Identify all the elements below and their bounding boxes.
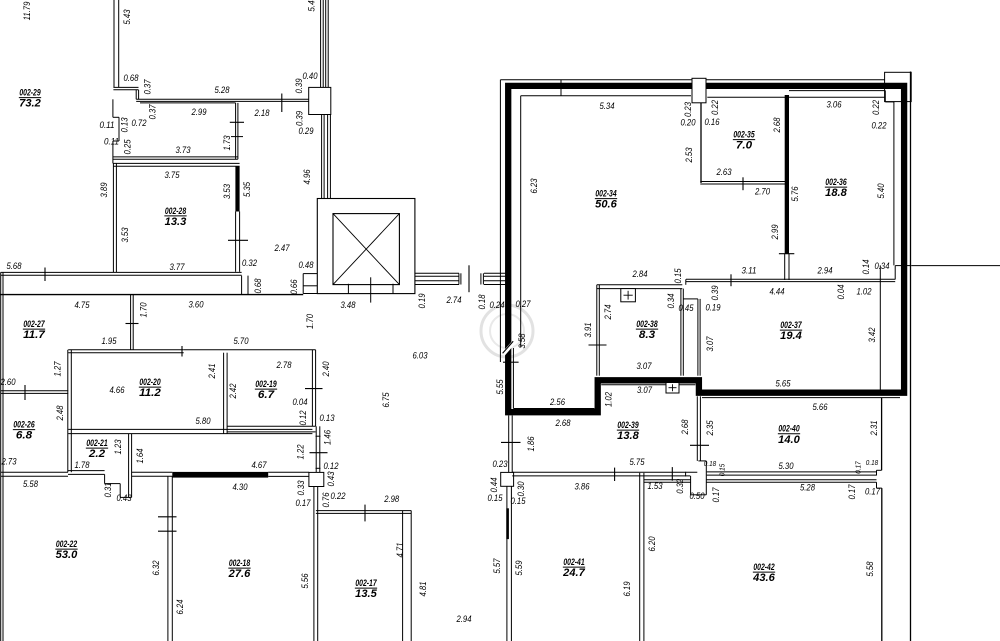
- svg-text:0.68: 0.68: [253, 278, 263, 293]
- svg-text:2.56: 2.56: [549, 397, 565, 407]
- svg-text:8.3: 8.3: [639, 329, 655, 341]
- svg-text:6.19: 6.19: [622, 581, 632, 596]
- svg-text:0.15: 0.15: [511, 496, 526, 506]
- svg-text:4.71: 4.71: [395, 542, 405, 557]
- svg-text:0.39: 0.39: [710, 285, 720, 300]
- svg-text:002-21: 002-21: [86, 438, 107, 448]
- svg-text:6.03: 6.03: [413, 350, 428, 360]
- svg-text:1.95: 1.95: [102, 336, 117, 346]
- svg-text:5.35: 5.35: [242, 182, 252, 197]
- svg-text:5.58: 5.58: [865, 561, 875, 576]
- svg-text:0.37: 0.37: [143, 79, 153, 95]
- svg-text:2.68: 2.68: [680, 419, 690, 435]
- svg-text:1.64: 1.64: [135, 448, 145, 463]
- svg-text:0.04: 0.04: [836, 284, 846, 299]
- svg-text:24.7: 24.7: [562, 567, 585, 579]
- svg-text:002-41: 002-41: [563, 557, 584, 567]
- svg-text:3.53: 3.53: [120, 227, 130, 242]
- svg-text:0.15: 0.15: [673, 268, 683, 283]
- svg-text:5.43: 5.43: [122, 9, 132, 24]
- svg-text:2.42: 2.42: [228, 383, 238, 399]
- svg-text:1.46: 1.46: [323, 430, 333, 445]
- svg-text:0.23: 0.23: [683, 102, 693, 117]
- svg-text:002-37: 002-37: [780, 320, 802, 330]
- svg-text:4.66: 4.66: [110, 385, 125, 395]
- svg-text:002-19: 002-19: [255, 379, 277, 389]
- svg-text:6.7: 6.7: [258, 389, 275, 401]
- svg-text:1.53: 1.53: [648, 481, 663, 491]
- svg-text:19.4: 19.4: [780, 330, 802, 342]
- svg-text:4.30: 4.30: [233, 482, 248, 492]
- svg-text:0.24: 0.24: [490, 300, 505, 310]
- svg-text:002-38: 002-38: [636, 319, 658, 329]
- svg-text:6.23: 6.23: [529, 178, 539, 193]
- svg-text:002-22: 002-22: [56, 539, 78, 549]
- svg-text:3.07: 3.07: [637, 361, 653, 371]
- svg-text:0.27: 0.27: [516, 299, 532, 309]
- svg-text:3.53: 3.53: [222, 184, 232, 199]
- svg-text:0.19: 0.19: [417, 293, 427, 308]
- svg-text:2.74: 2.74: [603, 304, 613, 320]
- svg-text:11.7: 11.7: [23, 329, 46, 341]
- svg-text:5.80: 5.80: [196, 416, 211, 426]
- svg-text:0.72: 0.72: [132, 118, 147, 128]
- svg-text:2.35: 2.35: [705, 420, 715, 436]
- svg-text:3.89: 3.89: [99, 182, 109, 197]
- svg-text:18.8: 18.8: [825, 187, 847, 199]
- svg-text:002-28: 002-28: [165, 206, 187, 216]
- svg-text:2.74: 2.74: [446, 295, 462, 305]
- svg-text:002-27: 002-27: [23, 319, 45, 329]
- svg-text:2.68: 2.68: [555, 418, 571, 428]
- svg-text:0.17: 0.17: [711, 487, 721, 503]
- svg-text:2.99: 2.99: [191, 107, 207, 117]
- svg-text:2.18: 2.18: [254, 108, 270, 118]
- svg-text:0.44: 0.44: [489, 477, 499, 492]
- svg-text:2.84: 2.84: [632, 269, 648, 279]
- svg-text:4.81: 4.81: [418, 581, 428, 596]
- svg-text:0.30: 0.30: [516, 481, 526, 496]
- svg-text:4.75: 4.75: [75, 300, 90, 310]
- svg-text:0.22: 0.22: [872, 120, 887, 130]
- svg-text:0.43: 0.43: [326, 471, 336, 486]
- svg-text:0.23: 0.23: [493, 459, 508, 469]
- svg-text:0.18: 0.18: [866, 460, 878, 467]
- svg-text:0.33: 0.33: [296, 480, 306, 495]
- svg-text:0.32: 0.32: [675, 479, 685, 494]
- svg-text:3.73: 3.73: [176, 145, 191, 155]
- svg-text:002-35: 002-35: [733, 130, 755, 140]
- svg-text:3.11: 3.11: [742, 265, 757, 275]
- svg-text:0.18: 0.18: [477, 294, 487, 309]
- svg-text:0.39: 0.39: [295, 111, 305, 126]
- svg-text:5.65: 5.65: [776, 378, 791, 388]
- svg-text:5.4: 5.4: [307, 0, 317, 11]
- svg-text:2.60: 2.60: [0, 377, 16, 387]
- svg-text:1.70: 1.70: [139, 302, 149, 317]
- svg-text:0.16: 0.16: [705, 117, 720, 127]
- svg-text:6.24: 6.24: [175, 599, 185, 614]
- svg-text:0.31: 0.31: [103, 482, 113, 497]
- svg-text:0.17: 0.17: [856, 460, 863, 473]
- svg-text:0.20: 0.20: [681, 118, 696, 128]
- svg-text:1.22: 1.22: [296, 444, 306, 459]
- svg-text:0.68: 0.68: [124, 73, 139, 83]
- svg-text:11.79: 11.79: [22, 2, 32, 21]
- svg-text:2.31: 2.31: [869, 420, 879, 436]
- svg-text:0.13: 0.13: [120, 117, 130, 132]
- svg-text:5.68: 5.68: [7, 261, 22, 271]
- svg-text:1.02: 1.02: [857, 286, 872, 296]
- svg-text:2.70: 2.70: [754, 187, 770, 197]
- svg-text:0.19: 0.19: [706, 302, 721, 312]
- svg-text:002-40: 002-40: [778, 424, 800, 434]
- svg-text:2.94: 2.94: [817, 265, 833, 275]
- svg-text:3.07: 3.07: [637, 385, 653, 395]
- svg-text:5.28: 5.28: [215, 85, 230, 95]
- svg-text:5.70: 5.70: [234, 336, 249, 346]
- svg-text:0.17: 0.17: [296, 498, 312, 508]
- svg-text:0.22: 0.22: [710, 100, 720, 115]
- svg-text:0.15: 0.15: [488, 493, 503, 503]
- svg-text:0.22: 0.22: [331, 491, 346, 501]
- svg-text:53.0: 53.0: [56, 549, 78, 561]
- svg-text:002-39: 002-39: [617, 420, 639, 430]
- svg-text:3.60: 3.60: [189, 299, 204, 309]
- svg-text:50.6: 50.6: [595, 199, 617, 211]
- svg-text:2.53: 2.53: [684, 147, 694, 163]
- svg-text:1.73: 1.73: [222, 135, 232, 150]
- svg-text:5.40: 5.40: [876, 183, 886, 198]
- svg-text:5.28: 5.28: [800, 483, 815, 493]
- svg-text:2.78: 2.78: [276, 360, 292, 370]
- svg-text:3.48: 3.48: [341, 300, 356, 310]
- svg-text:002-36: 002-36: [825, 177, 847, 187]
- svg-text:0.11: 0.11: [104, 136, 119, 146]
- svg-text:2.2: 2.2: [88, 448, 105, 460]
- svg-text:3.58: 3.58: [517, 333, 527, 348]
- svg-text:002-34: 002-34: [595, 189, 617, 199]
- svg-text:0.76: 0.76: [321, 492, 331, 507]
- svg-text:0.15: 0.15: [720, 464, 727, 476]
- svg-text:5.56: 5.56: [300, 573, 310, 588]
- svg-text:4.96: 4.96: [302, 169, 312, 184]
- svg-text:5.76: 5.76: [790, 186, 800, 201]
- svg-text:0.17: 0.17: [865, 486, 881, 496]
- svg-text:002-26: 002-26: [13, 420, 35, 430]
- svg-text:002-17: 002-17: [355, 578, 377, 588]
- svg-text:3.07: 3.07: [705, 336, 715, 352]
- svg-text:2.48: 2.48: [55, 405, 65, 421]
- svg-text:0.43: 0.43: [117, 493, 132, 503]
- svg-text:3.91: 3.91: [583, 322, 593, 337]
- svg-text:0.37: 0.37: [148, 104, 158, 120]
- svg-text:2.73: 2.73: [1, 457, 17, 467]
- svg-text:2.40: 2.40: [321, 361, 331, 377]
- svg-text:5.66: 5.66: [813, 402, 828, 412]
- svg-text:0.17: 0.17: [847, 484, 857, 500]
- svg-text:1.86: 1.86: [526, 436, 536, 451]
- svg-text:3.77: 3.77: [170, 262, 186, 272]
- svg-text:7.0: 7.0: [736, 140, 753, 152]
- svg-text:5.34: 5.34: [600, 101, 615, 111]
- svg-text:6.20: 6.20: [647, 536, 657, 551]
- svg-text:002-29: 002-29: [19, 88, 41, 98]
- svg-text:2.99: 2.99: [770, 224, 780, 240]
- svg-text:4.67: 4.67: [252, 460, 268, 470]
- svg-text:0.14: 0.14: [861, 259, 871, 274]
- svg-text:1.78: 1.78: [75, 460, 90, 470]
- svg-text:5.57: 5.57: [492, 558, 502, 574]
- svg-text:0.66: 0.66: [289, 279, 299, 294]
- svg-text:13.3: 13.3: [165, 216, 187, 228]
- svg-text:5.58: 5.58: [23, 479, 38, 489]
- svg-text:2.47: 2.47: [274, 243, 291, 253]
- svg-text:0.04: 0.04: [293, 397, 308, 407]
- svg-text:2.68: 2.68: [772, 117, 782, 133]
- svg-text:002-20: 002-20: [139, 377, 161, 387]
- svg-text:11.2: 11.2: [139, 387, 161, 399]
- svg-text:1.02: 1.02: [604, 392, 614, 407]
- svg-text:0.29: 0.29: [299, 126, 314, 136]
- svg-text:1.70: 1.70: [305, 314, 315, 329]
- svg-text:002-42: 002-42: [753, 562, 775, 572]
- svg-text:0.13: 0.13: [320, 413, 335, 423]
- svg-text:3.42: 3.42: [867, 327, 877, 342]
- svg-text:6.32: 6.32: [151, 560, 161, 575]
- svg-text:0.12: 0.12: [298, 410, 308, 425]
- svg-text:3.06: 3.06: [827, 99, 842, 109]
- svg-text:0.34: 0.34: [875, 261, 890, 271]
- svg-text:1.23: 1.23: [113, 439, 123, 454]
- svg-text:1.27: 1.27: [53, 361, 63, 377]
- svg-text:27.6: 27.6: [228, 568, 251, 580]
- svg-text:0.45: 0.45: [679, 303, 694, 313]
- svg-text:73.2: 73.2: [19, 98, 41, 110]
- svg-text:0.18: 0.18: [704, 461, 716, 468]
- svg-text:2.63: 2.63: [716, 167, 732, 177]
- svg-text:5.75: 5.75: [630, 457, 645, 467]
- svg-text:6.75: 6.75: [381, 392, 391, 407]
- svg-text:3.75: 3.75: [165, 170, 180, 180]
- svg-text:14.0: 14.0: [778, 434, 800, 446]
- svg-text:5.55: 5.55: [495, 379, 505, 394]
- svg-text:002-18: 002-18: [229, 558, 251, 568]
- svg-text:0.40: 0.40: [303, 71, 318, 81]
- svg-text:2.98: 2.98: [383, 494, 399, 504]
- svg-text:0.39: 0.39: [294, 78, 304, 93]
- svg-text:0.12: 0.12: [324, 461, 339, 471]
- svg-text:0.22: 0.22: [871, 100, 881, 115]
- svg-text:4.44: 4.44: [770, 286, 785, 296]
- svg-text:0.25: 0.25: [123, 139, 133, 154]
- svg-text:2.94: 2.94: [456, 614, 472, 624]
- svg-text:0.50: 0.50: [690, 491, 705, 501]
- svg-text:13.8: 13.8: [617, 430, 639, 442]
- svg-text:43.6: 43.6: [752, 572, 775, 584]
- svg-text:0.48: 0.48: [299, 260, 314, 270]
- svg-text:3.86: 3.86: [575, 482, 590, 492]
- svg-text:0.11: 0.11: [100, 120, 115, 130]
- svg-text:0.32: 0.32: [242, 258, 257, 268]
- svg-text:5.30: 5.30: [779, 461, 794, 471]
- svg-text:5.59: 5.59: [514, 560, 524, 575]
- svg-text:6.8: 6.8: [16, 430, 33, 442]
- svg-text:2.41: 2.41: [207, 363, 217, 379]
- svg-text:0.34: 0.34: [666, 293, 676, 308]
- svg-text:13.5: 13.5: [355, 588, 377, 600]
